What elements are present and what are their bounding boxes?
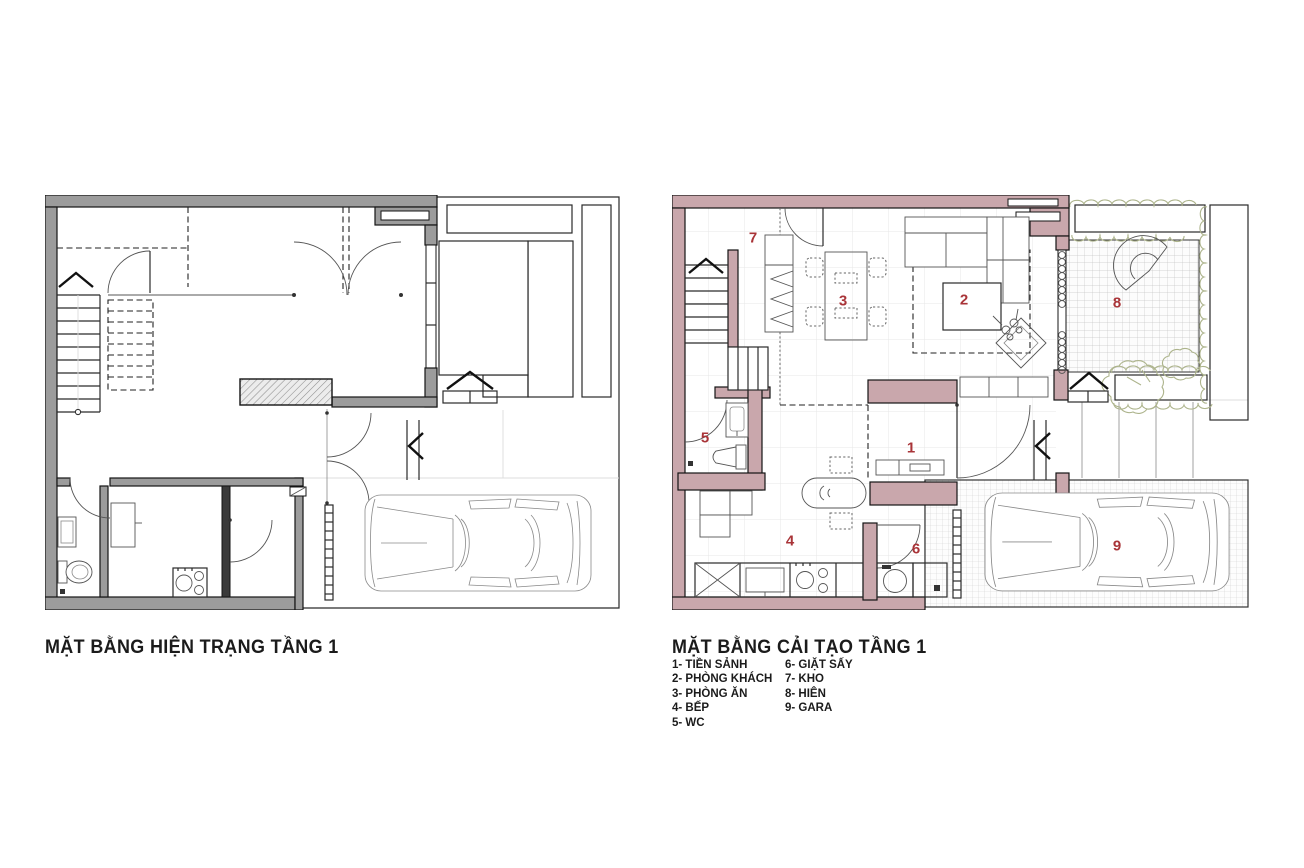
- main-door: [325, 409, 371, 505]
- kitchen: [111, 503, 272, 597]
- window-wall: [426, 245, 436, 368]
- coffee-table: [943, 283, 1001, 330]
- porch-steps: [443, 372, 497, 403]
- double-door: [292, 242, 403, 297]
- gate-track: [325, 505, 333, 600]
- bench: [960, 377, 1048, 397]
- driveway: [1062, 400, 1248, 478]
- legend-column-1: 1- TIỀN SẢNH 2- PHÒNG KHÁCH 3- PHÒNG ĂN …: [672, 658, 772, 730]
- legend-item: 5- WC: [672, 716, 772, 730]
- overhead-dashed: [57, 207, 349, 295]
- legend-item: 8- HIÊN: [785, 687, 853, 701]
- window: [381, 211, 429, 220]
- room-label-2: 2: [960, 292, 968, 309]
- legend-item: 1- TIỀN SẢNH: [672, 658, 772, 672]
- window: [1008, 199, 1058, 206]
- room-label-9: 9: [1113, 538, 1121, 555]
- legend-item: 7- KHO: [785, 672, 853, 686]
- room-label-5: 5: [701, 430, 709, 447]
- car-icon: [985, 493, 1229, 591]
- planter-box: [240, 379, 332, 405]
- side-steps: [407, 420, 423, 480]
- room-label-4: 4: [786, 533, 794, 550]
- patio: [439, 241, 528, 375]
- counter: [111, 503, 135, 547]
- staircase: [57, 251, 153, 415]
- room-label-7: 7: [749, 230, 757, 247]
- room-label-3: 3: [839, 293, 847, 310]
- room-label-8: 8: [1113, 295, 1121, 312]
- legend-item: 3- PHÒNG ĂN: [672, 687, 772, 701]
- door-arc: [108, 251, 150, 293]
- stove-icon: [173, 568, 207, 597]
- planting-beds: [439, 205, 611, 397]
- legend-item: 6- GIẶT SẤY: [785, 658, 853, 672]
- closet: [765, 235, 793, 332]
- legend-item: 2- PHÒNG KHÁCH: [672, 672, 772, 686]
- legend-item: 4- BẾP: [672, 701, 772, 715]
- room-label-6: 6: [912, 541, 920, 558]
- existing-floor-plan: [45, 195, 620, 610]
- porch-deck: [1063, 240, 1199, 372]
- drawing-sheet: 7 3 2 8 5 1 4 6 9 MẶT BẰNG HIỆN TRẠNG TẦ…: [0, 0, 1304, 868]
- car-icon: [365, 495, 591, 591]
- legend-item: 9- GARA: [785, 701, 853, 715]
- door-arc: [230, 520, 272, 562]
- existing-plan-title: MẶT BẰNG HIỆN TRẠNG TẦNG 1: [45, 636, 339, 659]
- renovated-plan-title: MẶT BẰNG CẢI TẠO TẦNG 1: [672, 636, 927, 659]
- sink-icon: [726, 403, 748, 437]
- gate-track: [953, 510, 961, 598]
- room-label-1: 1: [907, 440, 915, 457]
- legend-column-2: 6- GIẶT SẤY 7- KHO 8- HIÊN 9- GARA: [785, 658, 853, 716]
- toilet-icon: [58, 561, 92, 583]
- renovated-floor-plan: [672, 195, 1250, 610]
- shoe-bench: [876, 460, 944, 475]
